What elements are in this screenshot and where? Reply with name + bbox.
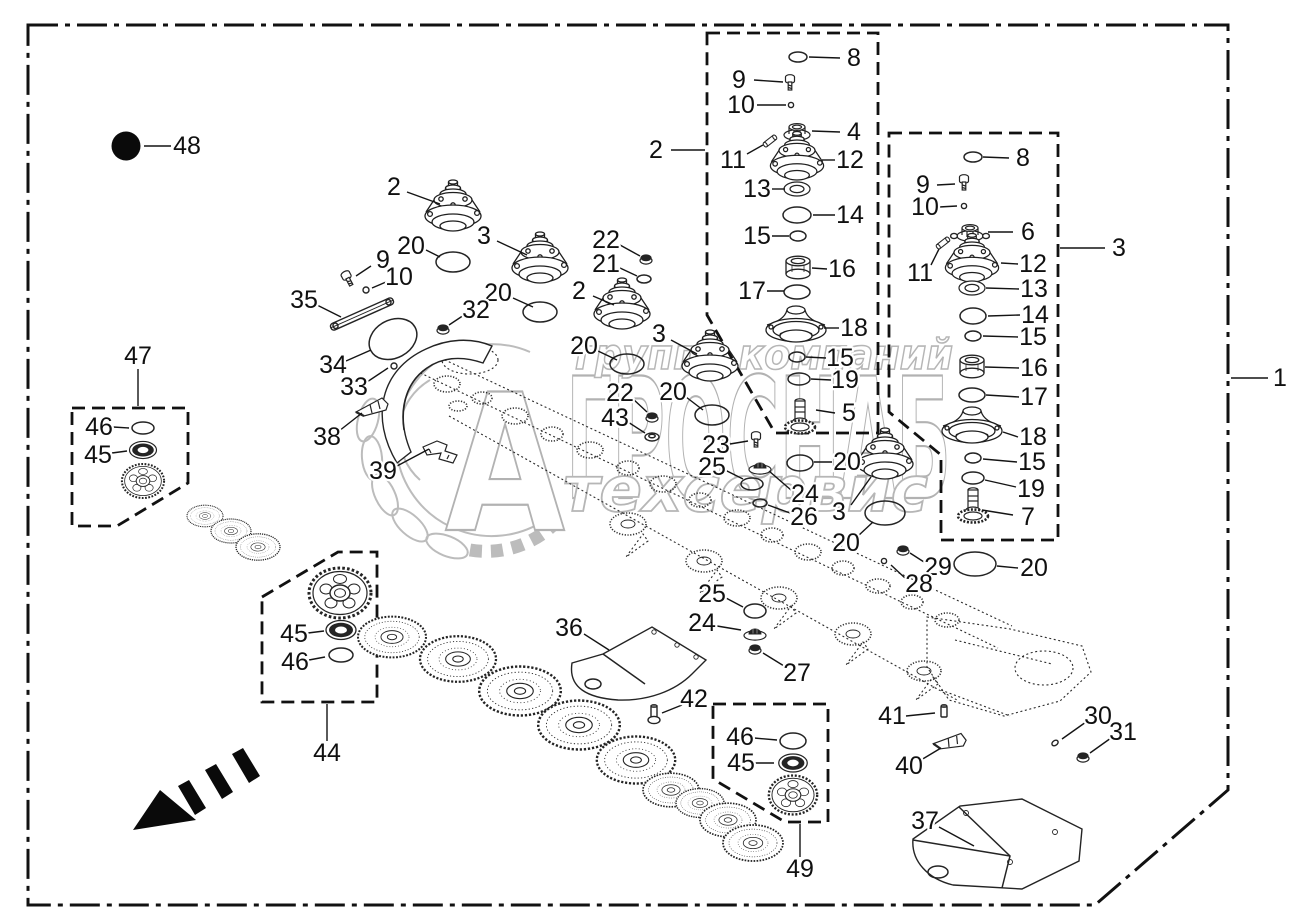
callout-3-3: 3 <box>1112 234 1126 262</box>
callout-44-74: 44 <box>313 739 341 767</box>
callout-2-36: 2 <box>387 173 401 201</box>
pinion-shaft <box>958 488 988 523</box>
leader-line-38-49 <box>339 413 362 431</box>
callout-20-38: 20 <box>397 232 425 260</box>
o-ring <box>783 207 811 223</box>
callout-37-73: 37 <box>911 807 939 835</box>
nut <box>646 412 658 422</box>
callout-22-53: 22 <box>606 379 634 407</box>
hub-assembly <box>512 232 568 283</box>
direction-arrow <box>133 748 260 830</box>
callout-46-80: 46 <box>281 648 309 676</box>
callout-24-66: 24 <box>688 609 716 637</box>
bolt <box>1077 752 1089 762</box>
o-ring <box>780 733 806 749</box>
leader-line-10-40 <box>372 282 386 288</box>
o-ring <box>962 472 984 484</box>
callout-18-31: 18 <box>1019 423 1047 451</box>
callout-1-1: 1 <box>1273 364 1287 392</box>
callout-2-2: 2 <box>649 136 663 164</box>
leader-line-46-80 <box>309 657 325 660</box>
callout-9-5: 9 <box>732 66 746 94</box>
leader-line-42-68 <box>662 705 682 713</box>
callout-49-76: 49 <box>786 855 814 883</box>
leader-line-3-37 <box>497 241 527 255</box>
callout-35-45: 35 <box>290 286 318 314</box>
callout-15-32: 15 <box>1018 448 1046 476</box>
o-ring <box>965 331 981 341</box>
pin <box>881 558 886 563</box>
callout-20-19: 20 <box>833 448 861 476</box>
leader-line-19-33 <box>985 480 1016 487</box>
washer <box>784 182 810 196</box>
callout-7-34: 7 <box>1021 503 1035 531</box>
leader-line-22-41 <box>620 245 640 256</box>
o-ring <box>784 285 810 299</box>
nut <box>640 254 652 264</box>
leader-line-46-77 <box>113 427 129 428</box>
callout-3-50: 3 <box>652 320 666 348</box>
ball <box>961 203 966 208</box>
callout-3-37: 3 <box>477 222 491 250</box>
nut <box>897 545 909 555</box>
leader-line-12-25 <box>1001 263 1018 264</box>
leader-line-20-35 <box>997 566 1018 568</box>
o-ring <box>959 388 985 402</box>
leader-line-27-67 <box>763 653 784 666</box>
leader-line-10-22 <box>939 206 957 207</box>
cutting-disc-chain-upper <box>187 505 280 560</box>
leader-line-31-72 <box>1090 738 1111 753</box>
callout-2-43: 2 <box>572 277 586 305</box>
callout-16-13: 16 <box>828 255 856 283</box>
callout-28-63: 28 <box>905 570 933 598</box>
box49-parts <box>769 733 817 815</box>
lock-nut <box>960 355 984 378</box>
hub-assembly <box>594 278 650 329</box>
bearing <box>130 441 157 458</box>
exploded-parts-diagram: А ГРОСНАБ группа компаний техсервис <box>0 0 1305 919</box>
callout-21-42: 21 <box>592 250 620 278</box>
callout-31-72: 31 <box>1109 718 1137 746</box>
leader-line-14-27 <box>988 315 1020 316</box>
callout-48-0: 48 <box>173 132 201 160</box>
leader-line-46-81 <box>754 738 777 740</box>
callout-32-47: 32 <box>462 296 490 324</box>
bolt <box>340 270 355 288</box>
o-ring <box>329 648 353 662</box>
callout-45-82: 45 <box>727 749 755 777</box>
leader-line-36-64 <box>584 634 609 650</box>
callout-13-10: 13 <box>743 175 771 203</box>
leader-line-30-71 <box>1062 722 1086 739</box>
flanged-washer <box>645 433 659 441</box>
callout-15-12: 15 <box>743 222 771 250</box>
wear-bar <box>330 297 395 331</box>
pin-41 <box>941 704 947 717</box>
leader-line-17-30 <box>986 395 1019 397</box>
leader-line-13-26 <box>986 288 1019 289</box>
pin-30 <box>1051 739 1059 747</box>
callout-19-17: 19 <box>831 366 859 394</box>
hub-housing <box>766 306 826 342</box>
leader-line-20-38 <box>426 250 440 257</box>
callout-8-20: 8 <box>1016 144 1030 172</box>
callout-15-28: 15 <box>1019 323 1047 351</box>
ball <box>788 102 793 107</box>
leader-line-19-17 <box>811 379 831 380</box>
hub-assembly <box>425 180 481 231</box>
leader-line-24-66 <box>717 626 741 630</box>
wedge <box>933 730 967 752</box>
bearing <box>326 621 356 640</box>
ball <box>391 363 397 369</box>
leader-line-20-44 <box>513 298 533 307</box>
callout-39-52: 39 <box>369 457 397 485</box>
bar-end-plate <box>927 617 1091 716</box>
callout-8-4: 8 <box>847 44 861 72</box>
cutting-disc-chain-main <box>358 617 783 861</box>
bearing <box>779 754 808 772</box>
callout-4-7: 4 <box>847 118 861 146</box>
hub-housing <box>942 407 1002 443</box>
callout-17-30: 17 <box>1020 383 1048 411</box>
pin <box>762 134 777 147</box>
leader-line-15-28 <box>983 336 1018 337</box>
leader-line-34-46 <box>346 350 371 361</box>
callout-12-8: 12 <box>836 146 864 174</box>
gear-wheel <box>122 464 164 498</box>
leader-line-11-9 <box>747 145 763 154</box>
callout-14-11: 14 <box>836 201 864 229</box>
cutting-disc <box>236 534 280 560</box>
leader-line-45-78 <box>112 451 127 453</box>
nut <box>437 324 449 334</box>
leader-line-41-69 <box>906 713 935 716</box>
callout-20-35: 20 <box>1020 554 1048 582</box>
callout-25-57: 25 <box>698 453 726 481</box>
leader-line-45-79 <box>308 631 324 633</box>
callout-46-81: 46 <box>726 723 754 751</box>
cutting-disc <box>358 617 426 658</box>
callout-38-49: 38 <box>313 423 341 451</box>
callout-12-25: 12 <box>1019 250 1047 278</box>
callout-25-65: 25 <box>698 580 726 608</box>
leader-line-18-31 <box>1003 432 1018 437</box>
callout-45-79: 45 <box>280 620 308 648</box>
leader-line-33-48 <box>367 368 388 382</box>
o-ring <box>964 152 982 162</box>
washer <box>959 281 985 295</box>
callout-40-70: 40 <box>895 752 923 780</box>
o-ring <box>789 52 807 62</box>
o-ring <box>965 453 981 463</box>
cutting-disc <box>420 636 496 682</box>
leader-line-15-16 <box>806 357 826 358</box>
callout-46-77: 46 <box>85 413 113 441</box>
bottom-right <box>913 704 1089 889</box>
leader-line-28-63 <box>891 565 905 578</box>
cutting-disc <box>538 701 620 750</box>
callout-10-40: 10 <box>385 263 413 291</box>
callout-33-48: 33 <box>340 373 368 401</box>
callout-41-69: 41 <box>878 702 906 730</box>
callout-10-22: 10 <box>911 193 939 221</box>
bolt-42 <box>648 704 660 723</box>
lock-nut <box>786 256 810 279</box>
hub-assembly <box>770 132 823 180</box>
callout-6-23: 6 <box>1021 218 1035 246</box>
flanged-ring <box>637 275 651 283</box>
bolt <box>786 75 795 90</box>
leader-line-25-65 <box>726 598 743 607</box>
leader-line-21-42 <box>620 268 637 276</box>
callout-3-60: 3 <box>832 498 846 526</box>
callout-27-67: 27 <box>783 659 811 687</box>
leader-line-8-20 <box>983 157 1009 158</box>
callout-20-51: 20 <box>570 332 598 360</box>
nut <box>749 644 761 654</box>
gear-wheel <box>309 568 371 618</box>
leader-line-9-39 <box>356 266 371 276</box>
callout-11-9: 11 <box>720 146 746 174</box>
callout-30-71: 30 <box>1084 702 1112 730</box>
o-ring <box>960 308 986 324</box>
leader-line-40-70 <box>921 748 941 760</box>
o-ring <box>132 422 154 434</box>
leader-line-9-21 <box>937 184 955 185</box>
hub-assembly <box>945 234 998 282</box>
leader-line-9-5 <box>754 80 783 82</box>
callout-5-18: 5 <box>842 399 856 427</box>
leader-line-4-7 <box>812 131 840 132</box>
callout-17-14: 17 <box>738 277 766 305</box>
leader-line-16-13 <box>812 268 827 269</box>
o-ring <box>790 231 806 241</box>
callout-10-6: 10 <box>727 91 755 119</box>
bolt <box>960 175 969 190</box>
leader-line-16-29 <box>985 367 1019 368</box>
reference-dot-48 <box>112 132 141 161</box>
dome-cap <box>744 629 766 641</box>
leader-line-8-4 <box>809 57 840 58</box>
box47-parts <box>122 422 164 498</box>
callout-16-29: 16 <box>1020 354 1048 382</box>
cutting-disc <box>723 825 783 861</box>
box44-parts <box>309 568 371 662</box>
pin <box>935 236 950 249</box>
callout-36-64: 36 <box>555 614 583 642</box>
callout-26-59: 26 <box>790 503 818 531</box>
callout-19-33: 19 <box>1017 475 1045 503</box>
callout-18-15: 18 <box>840 314 868 342</box>
callout-20-55: 20 <box>659 378 687 406</box>
ball <box>363 287 369 293</box>
leader-line-29-62 <box>910 553 924 562</box>
o-ring <box>744 604 766 618</box>
callout-47-75: 47 <box>124 342 152 370</box>
callout-11-24: 11 <box>907 259 933 287</box>
watermark-monogram: А <box>445 354 565 575</box>
o-ring <box>954 552 996 576</box>
leader-line-15-32 <box>983 459 1017 462</box>
callout-13-26: 13 <box>1020 275 1048 303</box>
callout-20-61: 20 <box>832 529 860 557</box>
callout-43-54: 43 <box>601 404 629 432</box>
o-ring <box>436 252 470 272</box>
callout-45-78: 45 <box>84 441 112 469</box>
leader-line-35-45 <box>317 305 341 317</box>
gear-wheel <box>769 776 817 815</box>
callout-42-68: 42 <box>680 685 708 713</box>
